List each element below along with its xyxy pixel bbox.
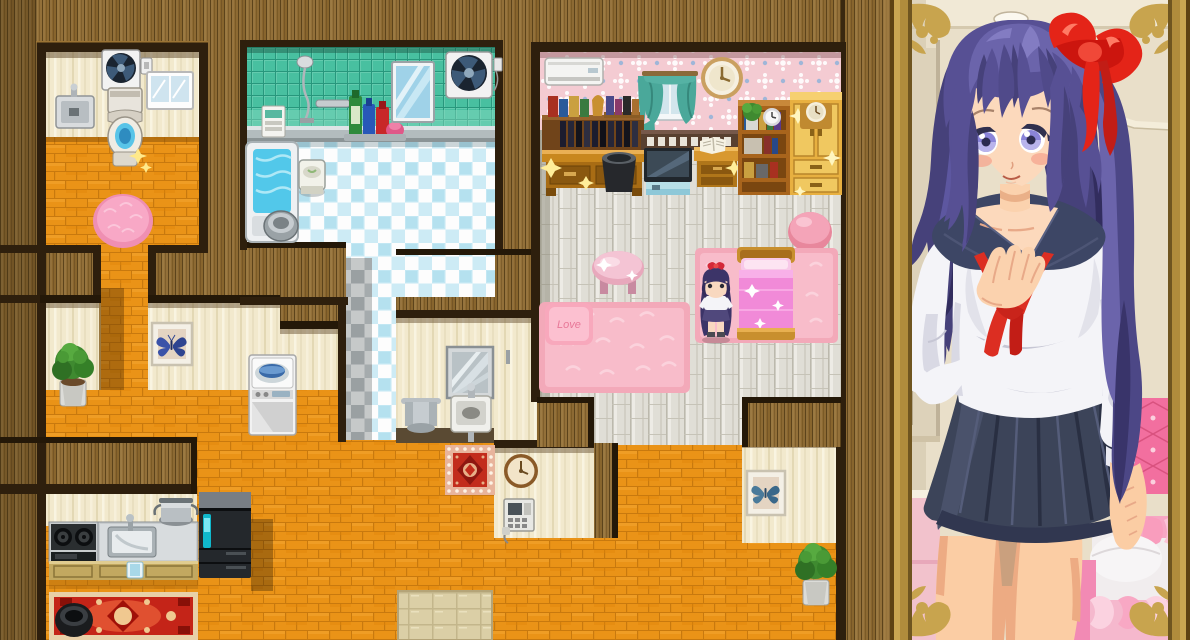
svg-text:Love: Love — [557, 319, 581, 331]
